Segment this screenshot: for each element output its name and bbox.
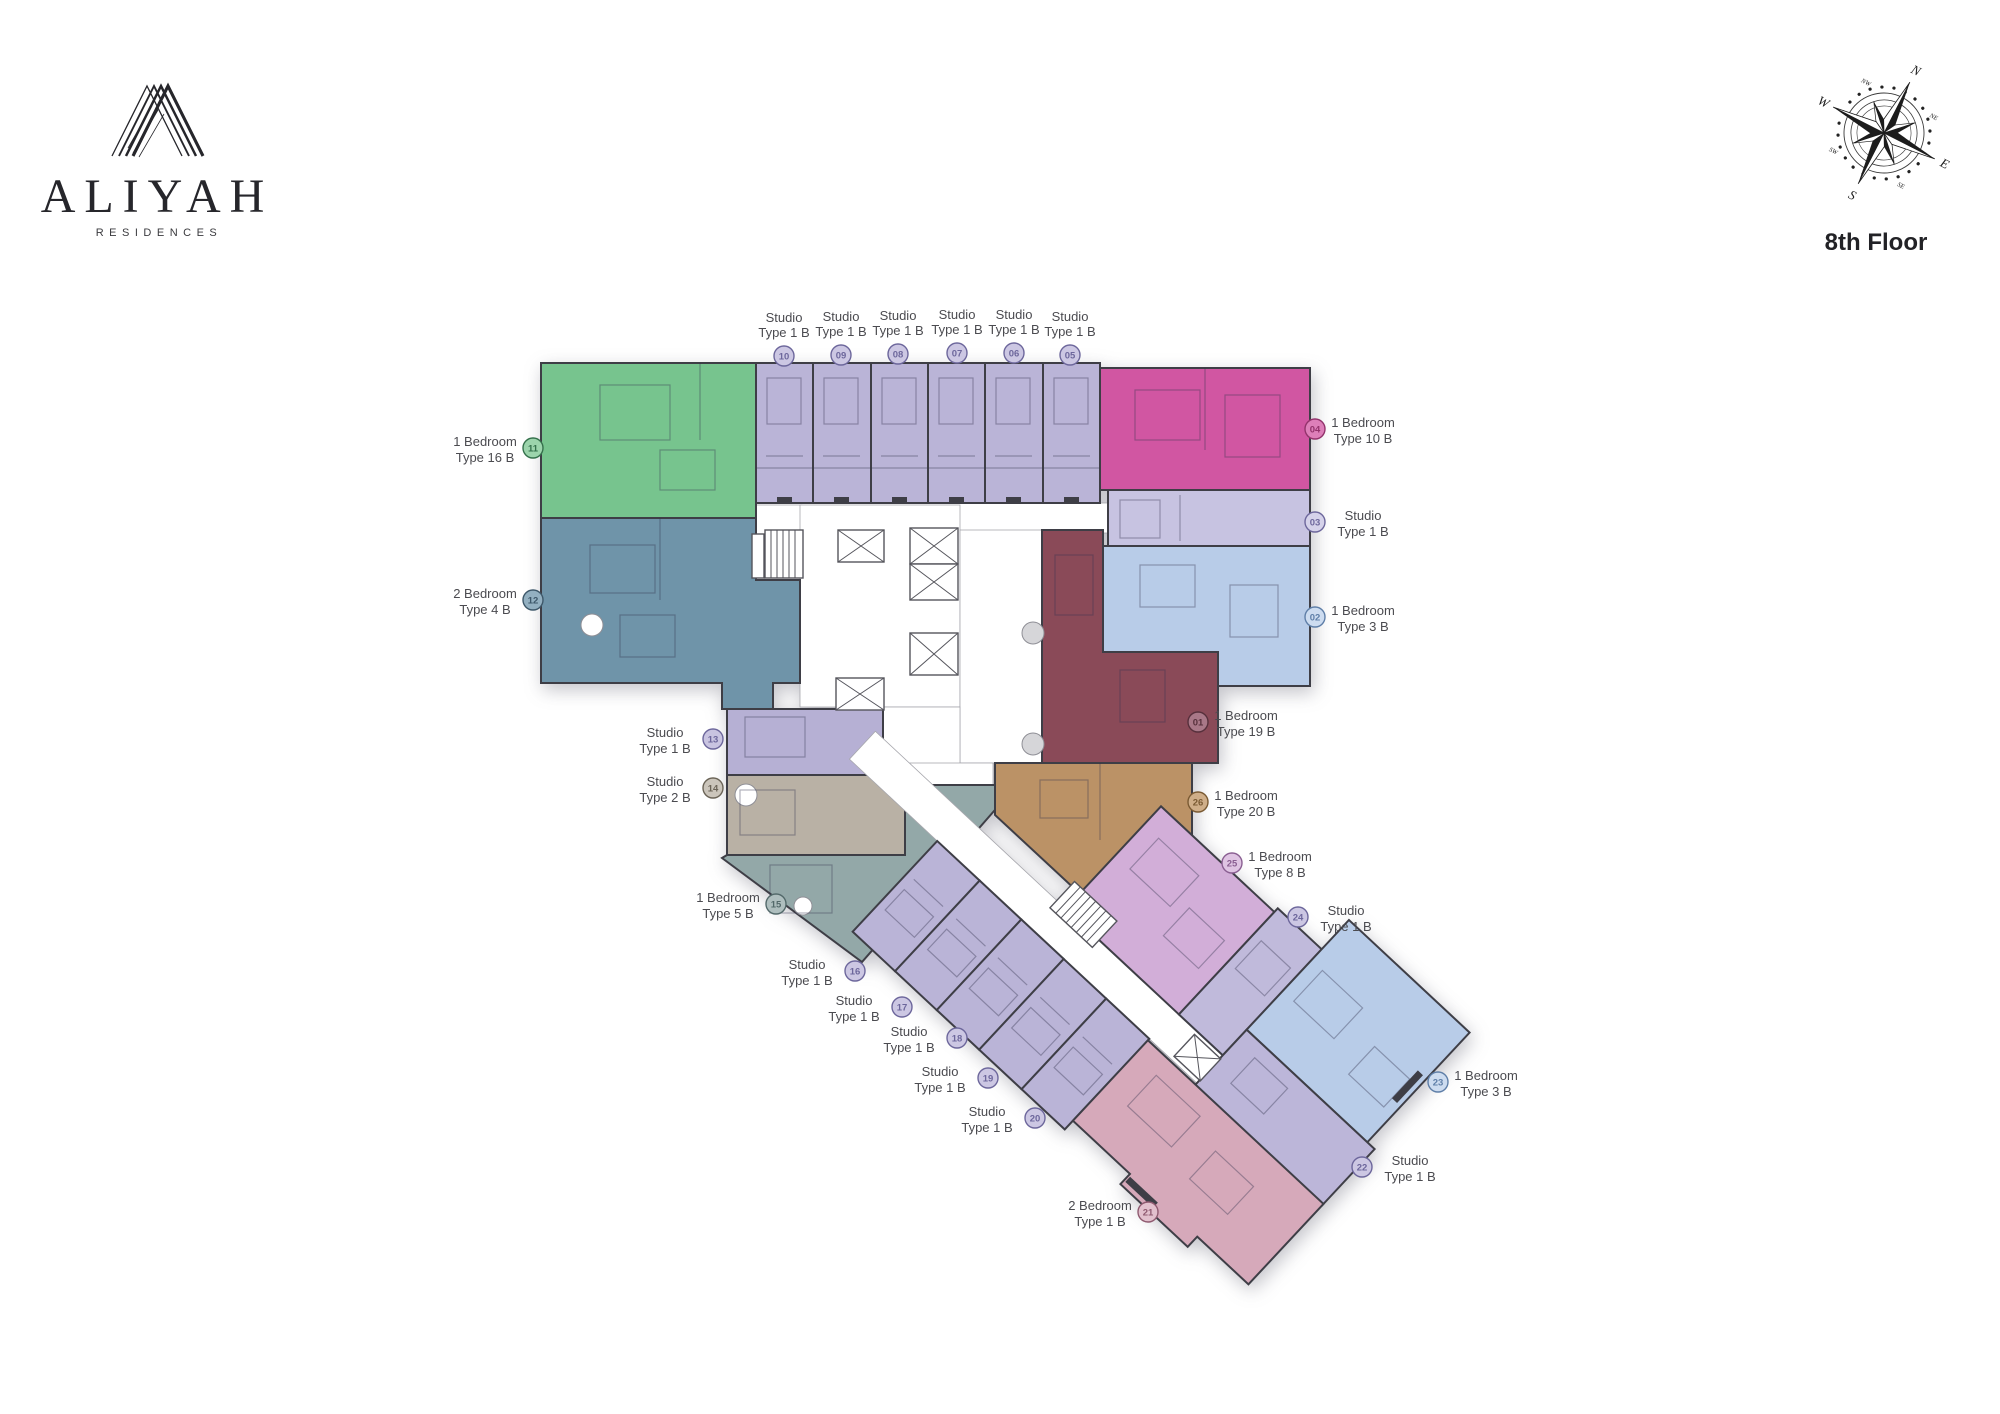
unit-05-shape[interactable] [1043, 363, 1100, 503]
unit-14-number: 14 [708, 784, 719, 795]
compass-n: N [1908, 61, 1925, 79]
unit-02-label: 1 BedroomType 3 B [1331, 603, 1395, 634]
unit-11-label: 1 BedroomType 16 B [453, 434, 517, 465]
brand-tagline: RESIDENCES [96, 227, 223, 239]
unit-18-label: StudioType 1 B [883, 1024, 934, 1055]
unit-11-number: 11 [528, 444, 539, 455]
logo-chevron-icon [112, 86, 203, 157]
unit-05-label: StudioType 1 B [1044, 309, 1095, 339]
compass-e: E [1937, 154, 1952, 171]
floor-plan-page: ALIYAH RESIDENCES N E S W NE S [0, 0, 2000, 1414]
unit-03-label: StudioType 1 B [1337, 508, 1388, 539]
compass-se: SE [1896, 181, 1906, 191]
unit-19-number: 19 [983, 1074, 994, 1085]
compass-s: S [1846, 187, 1859, 204]
unit-17-marker: 17StudioType 1 B [828, 993, 912, 1024]
unit-18-marker: 18StudioType 1 B [883, 1024, 967, 1055]
unit-01-label: 1 BedroomType 19 B [1214, 708, 1278, 739]
unit-12-marker: 122 BedroomType 4 B [453, 586, 543, 617]
unit-08-shape[interactable] [871, 363, 928, 503]
unit-20-number: 20 [1030, 1114, 1041, 1125]
unit-21-marker: 212 BedroomType 1 B [1068, 1198, 1158, 1229]
unit-21-number: 21 [1143, 1208, 1154, 1219]
unit-16-label: StudioType 1 B [781, 957, 832, 988]
unit-09-marker: 09StudioType 1 B [815, 309, 866, 365]
unit-05-marker: 05StudioType 1 B [1044, 309, 1095, 365]
unit-24-number: 24 [1293, 913, 1304, 924]
unit-05-number: 05 [1065, 351, 1076, 362]
unit-10-marker: 10StudioType 1 B [758, 310, 809, 366]
unit-03-number: 03 [1310, 518, 1321, 529]
column [1022, 733, 1044, 755]
unit-09-number: 09 [836, 351, 847, 362]
brand-name: ALIYAH [41, 170, 274, 223]
unit-17-number: 17 [897, 1003, 908, 1014]
unit-16-number: 16 [850, 967, 861, 978]
unit-20-marker: 20StudioType 1 B [961, 1104, 1045, 1135]
unit-06-shape[interactable] [985, 363, 1043, 503]
unit-02-marker: 021 BedroomType 3 B [1305, 603, 1395, 634]
unit-09-label: StudioType 1 B [815, 309, 866, 339]
unit-12-number: 12 [528, 596, 539, 607]
unit-10-number: 10 [779, 352, 790, 363]
unit-15-number: 15 [771, 900, 782, 911]
unit-08-label: StudioType 1 B [872, 308, 923, 338]
unit-13-number: 13 [708, 735, 719, 746]
unit-15-marker: 151 BedroomType 5 B [696, 890, 786, 921]
unit-07-label: StudioType 1 B [931, 307, 982, 337]
unit-20-label: StudioType 1 B [961, 1104, 1012, 1135]
unit-25-label: 1 BedroomType 8 B [1248, 849, 1312, 880]
unit-22-number: 22 [1357, 1163, 1368, 1174]
unit-23-label: 1 BedroomType 3 B [1454, 1068, 1518, 1099]
unit-13-marker: 13StudioType 1 B [639, 725, 723, 756]
column [794, 897, 812, 915]
unit-11-marker: 111 BedroomType 16 B [453, 434, 543, 465]
unit-06-marker: 06StudioType 1 B [988, 307, 1039, 363]
unit-02-number: 02 [1310, 613, 1321, 624]
unit-25-number: 25 [1227, 859, 1238, 870]
unit-09-shape[interactable] [813, 363, 871, 503]
unit-10-shape[interactable] [756, 363, 813, 503]
floor-label: 8th Floor [1825, 229, 1928, 256]
unit-07-shape[interactable] [928, 363, 985, 503]
unit-14-label: StudioType 2 B [639, 774, 690, 805]
unit-19-label: StudioType 1 B [914, 1064, 965, 1095]
unit-22-label: StudioType 1 B [1384, 1153, 1435, 1184]
unit-04-marker: 041 BedroomType 10 B [1305, 415, 1395, 446]
unit-21-label: 2 BedroomType 1 B [1068, 1198, 1132, 1229]
unit-26-marker: 261 BedroomType 20 B [1188, 788, 1278, 819]
unit-17-label: StudioType 1 B [828, 993, 879, 1024]
unit-08-marker: 08StudioType 1 B [872, 308, 923, 364]
unit-14-marker: 14StudioType 2 B [639, 774, 723, 805]
unit-07-number: 07 [952, 349, 963, 360]
unit-04-number: 04 [1310, 425, 1321, 436]
unit-07-marker: 07StudioType 1 B [931, 307, 982, 363]
unit-22-marker: 22StudioType 1 B [1352, 1153, 1436, 1184]
compass-nw: NW [1859, 77, 1872, 88]
brand-logo: ALIYAH RESIDENCES [41, 86, 274, 239]
compass-long-points [1807, 56, 1960, 209]
floor-plan-svg: ALIYAH RESIDENCES N E S W NE S [0, 0, 2000, 1414]
unit-03-marker: 03StudioType 1 B [1305, 508, 1389, 539]
unit-23-marker: 231 BedroomType 3 B [1428, 1068, 1518, 1099]
column [581, 614, 603, 636]
unit-19-marker: 19StudioType 1 B [914, 1064, 998, 1095]
compass-ne: NE [1927, 112, 1938, 122]
unit-23-number: 23 [1433, 1078, 1444, 1089]
unit-15-label: 1 BedroomType 5 B [696, 890, 760, 921]
unit-12-label: 2 BedroomType 4 B [453, 586, 517, 617]
unit-06-number: 06 [1009, 349, 1020, 360]
unit-01-number: 01 [1193, 718, 1204, 729]
floor-plate [541, 363, 1477, 1295]
column [1022, 622, 1044, 644]
unit-08-number: 08 [893, 350, 904, 361]
unit-16-marker: 16StudioType 1 B [781, 957, 865, 988]
compass-sw: SW [1828, 146, 1839, 156]
compass-rose-icon: N E S W NE SE SW NW [1784, 30, 1984, 234]
unit-26-number: 26 [1193, 798, 1204, 809]
unit-13-label: StudioType 1 B [639, 725, 690, 756]
unit-18-number: 18 [952, 1034, 963, 1045]
unit-10-label: StudioType 1 B [758, 310, 809, 340]
unit-24-label: StudioType 1 B [1320, 903, 1371, 934]
column [735, 784, 757, 806]
unit-06-label: StudioType 1 B [988, 307, 1039, 337]
compass-w: W [1815, 93, 1833, 112]
unit-26-label: 1 BedroomType 20 B [1214, 788, 1278, 819]
unit-04-label: 1 BedroomType 10 B [1331, 415, 1395, 446]
